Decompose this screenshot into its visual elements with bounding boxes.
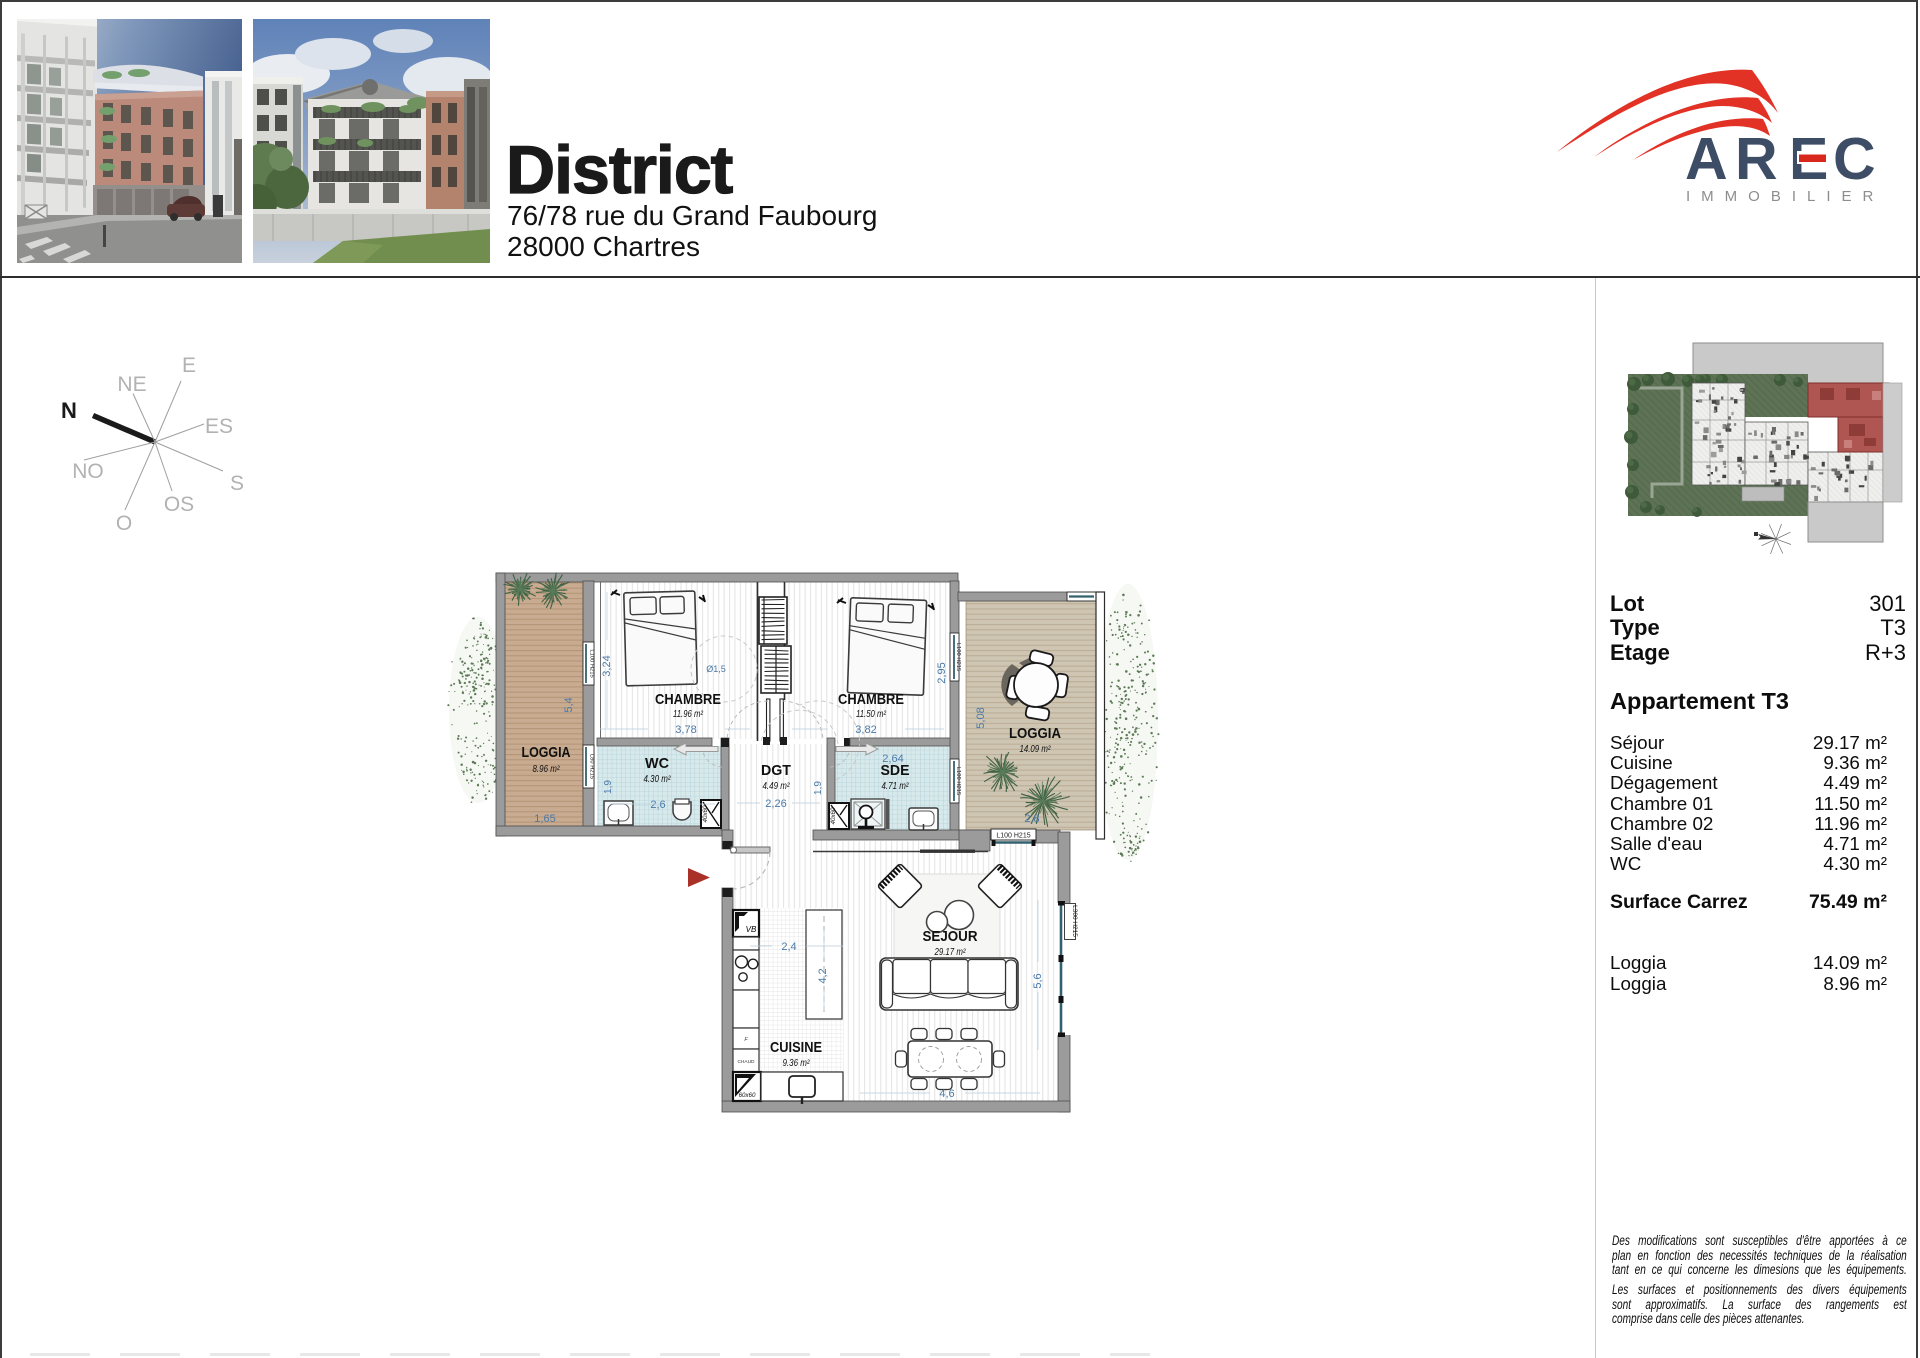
svg-text:SEJOUR: SEJOUR [923, 928, 978, 945]
svg-text:E: E [182, 354, 196, 377]
svg-text:CHAUD: CHAUD [737, 1059, 755, 1065]
svg-text:L100 H215: L100 H215 [589, 649, 595, 677]
svg-text:11.50 m²: 11.50 m² [856, 709, 887, 720]
svg-text:NE: NE [117, 373, 146, 396]
svg-text:14.09 m²: 14.09 m² [1020, 744, 1052, 755]
svg-text:4.30 m²: 4.30 m² [644, 774, 672, 785]
svg-text:OS: OS [164, 493, 194, 516]
svg-text:5,4: 5,4 [563, 697, 575, 712]
svg-text:40x60: 40x60 [702, 805, 709, 822]
svg-text:NO: NO [72, 460, 104, 483]
svg-text:S: S [230, 472, 244, 495]
svg-text:1,9: 1,9 [603, 780, 614, 794]
svg-text:CHAMBRE: CHAMBRE [838, 691, 904, 708]
svg-text:1,65: 1,65 [534, 813, 555, 825]
svg-text:Ø1,5: Ø1,5 [706, 664, 726, 674]
svg-text:N: N [61, 398, 77, 423]
svg-text:DGT: DGT [761, 762, 791, 779]
svg-text:ES: ES [205, 415, 233, 438]
svg-text:L80 H215: L80 H215 [589, 754, 595, 779]
svg-text:29.17 m²: 29.17 m² [934, 947, 966, 958]
svg-text:WC: WC [645, 755, 669, 772]
svg-text:2,64: 2,64 [882, 753, 903, 765]
svg-text:9.36 m²: 9.36 m² [783, 1058, 811, 1069]
svg-text:L100 H215: L100 H215 [996, 833, 1030, 840]
svg-text:L100 H215: L100 H215 [955, 643, 961, 671]
svg-text:L100 H215: L100 H215 [955, 767, 961, 795]
svg-text:VB: VB [746, 925, 757, 934]
svg-text:60x60: 60x60 [739, 1092, 756, 1099]
svg-text:2,4: 2,4 [781, 941, 796, 953]
svg-text:C: C [1833, 126, 1876, 192]
svg-text:L300 H215: L300 H215 [1071, 905, 1078, 937]
svg-text:2,8: 2,8 [1024, 813, 1039, 825]
svg-text:R: R [1735, 126, 1778, 192]
svg-text:40x60: 40x60 [830, 807, 837, 824]
svg-text:O: O [116, 512, 132, 535]
svg-text:3,24: 3,24 [601, 655, 613, 676]
svg-text:3,82: 3,82 [855, 724, 876, 736]
svg-text:CHAMBRE: CHAMBRE [655, 691, 721, 708]
svg-text:2,26: 2,26 [765, 798, 786, 810]
svg-text:3,78: 3,78 [675, 724, 696, 736]
svg-text:5,6: 5,6 [1032, 973, 1044, 988]
svg-text:11.96 m²: 11.96 m² [673, 709, 704, 720]
svg-text:2,95: 2,95 [936, 662, 948, 683]
svg-text:4,2: 4,2 [817, 968, 829, 983]
svg-text:1,9: 1,9 [813, 781, 824, 795]
svg-text:4.71 m²: 4.71 m² [882, 781, 910, 792]
svg-text:LOGGIA: LOGGIA [522, 744, 571, 761]
svg-text:2,6: 2,6 [650, 799, 665, 811]
svg-text:LOGGIA: LOGGIA [1009, 725, 1061, 742]
svg-text:IMMOBILIER: IMMOBILIER [1686, 188, 1884, 205]
svg-text:A: A [1685, 126, 1728, 192]
svg-text:4.49 m²: 4.49 m² [763, 781, 791, 792]
svg-text:4,6: 4,6 [939, 1088, 954, 1100]
svg-text:8.96 m²: 8.96 m² [533, 764, 561, 775]
svg-text:5,08: 5,08 [975, 707, 987, 728]
svg-text:CUISINE: CUISINE [770, 1039, 822, 1056]
